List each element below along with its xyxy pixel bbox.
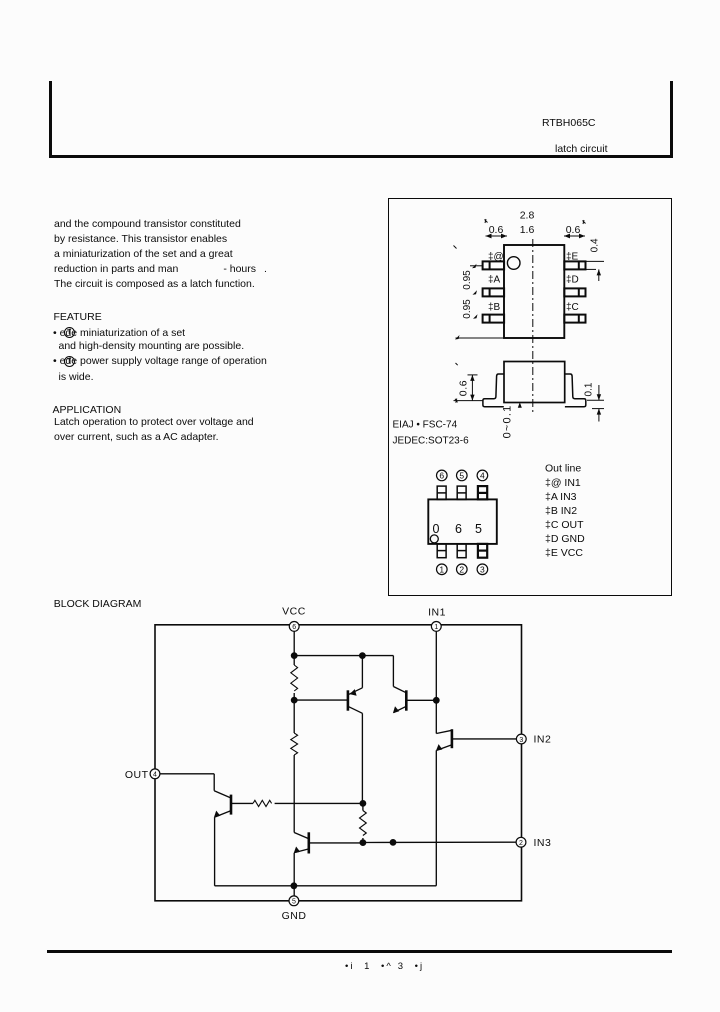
svg-text:2.8: 2.8	[520, 209, 535, 221]
svg-text:Out line: Out line	[545, 463, 581, 475]
svg-text:‡B: ‡B	[488, 302, 501, 313]
svg-text:4: 4	[153, 772, 157, 779]
svg-text:‡A IN3: ‡A IN3	[545, 491, 577, 503]
svg-text:6: 6	[455, 522, 462, 536]
svg-text:IN2: IN2	[534, 733, 552, 745]
svg-text:0.4: 0.4	[590, 238, 601, 252]
svg-text:2: 2	[519, 840, 523, 847]
svg-text:‡@ IN1: ‡@ IN1	[545, 477, 581, 489]
svg-text:‡E VCC: ‡E VCC	[545, 547, 583, 559]
svg-text:OUT: OUT	[125, 769, 149, 781]
svg-text:0.6: 0.6	[458, 380, 470, 396]
svg-text:GND: GND	[282, 910, 307, 922]
svg-text:0.1: 0.1	[584, 382, 595, 396]
svg-text:5: 5	[475, 522, 482, 536]
svg-text:0: 0	[433, 522, 440, 536]
svg-text:‡A: ‡A	[488, 275, 501, 286]
svg-text:1.6: 1.6	[520, 224, 535, 236]
svg-text:5: 5	[292, 899, 296, 906]
svg-text:0~0.1: 0~0.1	[502, 405, 514, 439]
svg-text:‡B IN2: ‡B IN2	[545, 505, 577, 517]
svg-text:1: 1	[434, 624, 438, 631]
svg-text:IN1: IN1	[428, 607, 446, 619]
svg-text:VCC: VCC	[282, 606, 306, 618]
svg-text:‡@: ‡@	[488, 252, 504, 263]
svg-text:‡D GND: ‡D GND	[545, 533, 585, 545]
svg-text:3: 3	[480, 565, 485, 575]
svg-text:4: 4	[480, 471, 485, 481]
svg-text:2: 2	[459, 565, 464, 575]
svg-text:EIAJ • FSC-74: EIAJ • FSC-74	[393, 420, 458, 431]
svg-text:JEDEC:SOT23-6: JEDEC:SOT23-6	[393, 436, 470, 447]
svg-text:6: 6	[292, 624, 296, 631]
svg-text:1: 1	[439, 565, 444, 575]
svg-text:‡E: ‡E	[566, 252, 579, 263]
svg-text:‡C: ‡C	[566, 302, 579, 313]
svg-text:3: 3	[519, 737, 523, 744]
svg-text:0.95: 0.95	[462, 299, 473, 319]
svg-text:6: 6	[439, 471, 444, 481]
svg-text:0.6: 0.6	[566, 224, 581, 236]
svg-text:5: 5	[459, 471, 464, 481]
svg-text:IN3: IN3	[534, 837, 552, 849]
svg-text:0.95: 0.95	[462, 270, 473, 290]
svg-text:‡C OUT: ‡C OUT	[545, 519, 584, 531]
svg-text:‡D: ‡D	[566, 275, 579, 286]
